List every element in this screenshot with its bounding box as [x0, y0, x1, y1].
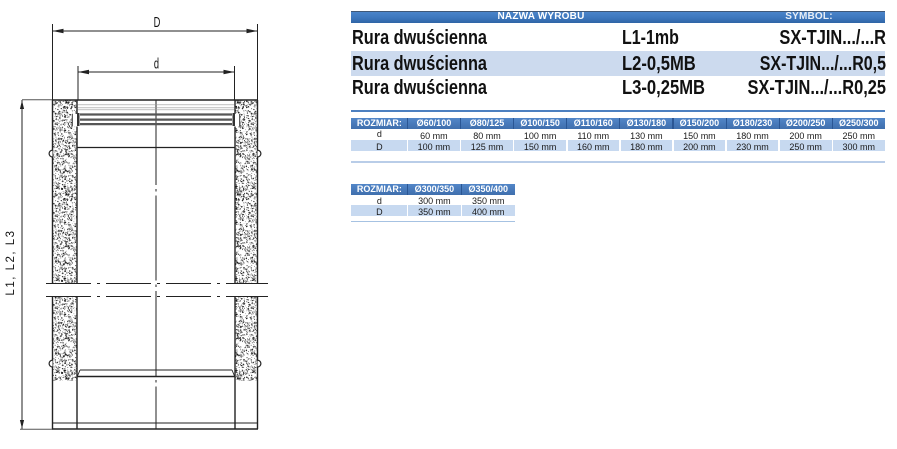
svg-text:L1, L2, L3: L1, L2, L3	[5, 229, 17, 295]
svg-text:d: d	[154, 55, 159, 72]
svg-text:D: D	[154, 14, 161, 31]
